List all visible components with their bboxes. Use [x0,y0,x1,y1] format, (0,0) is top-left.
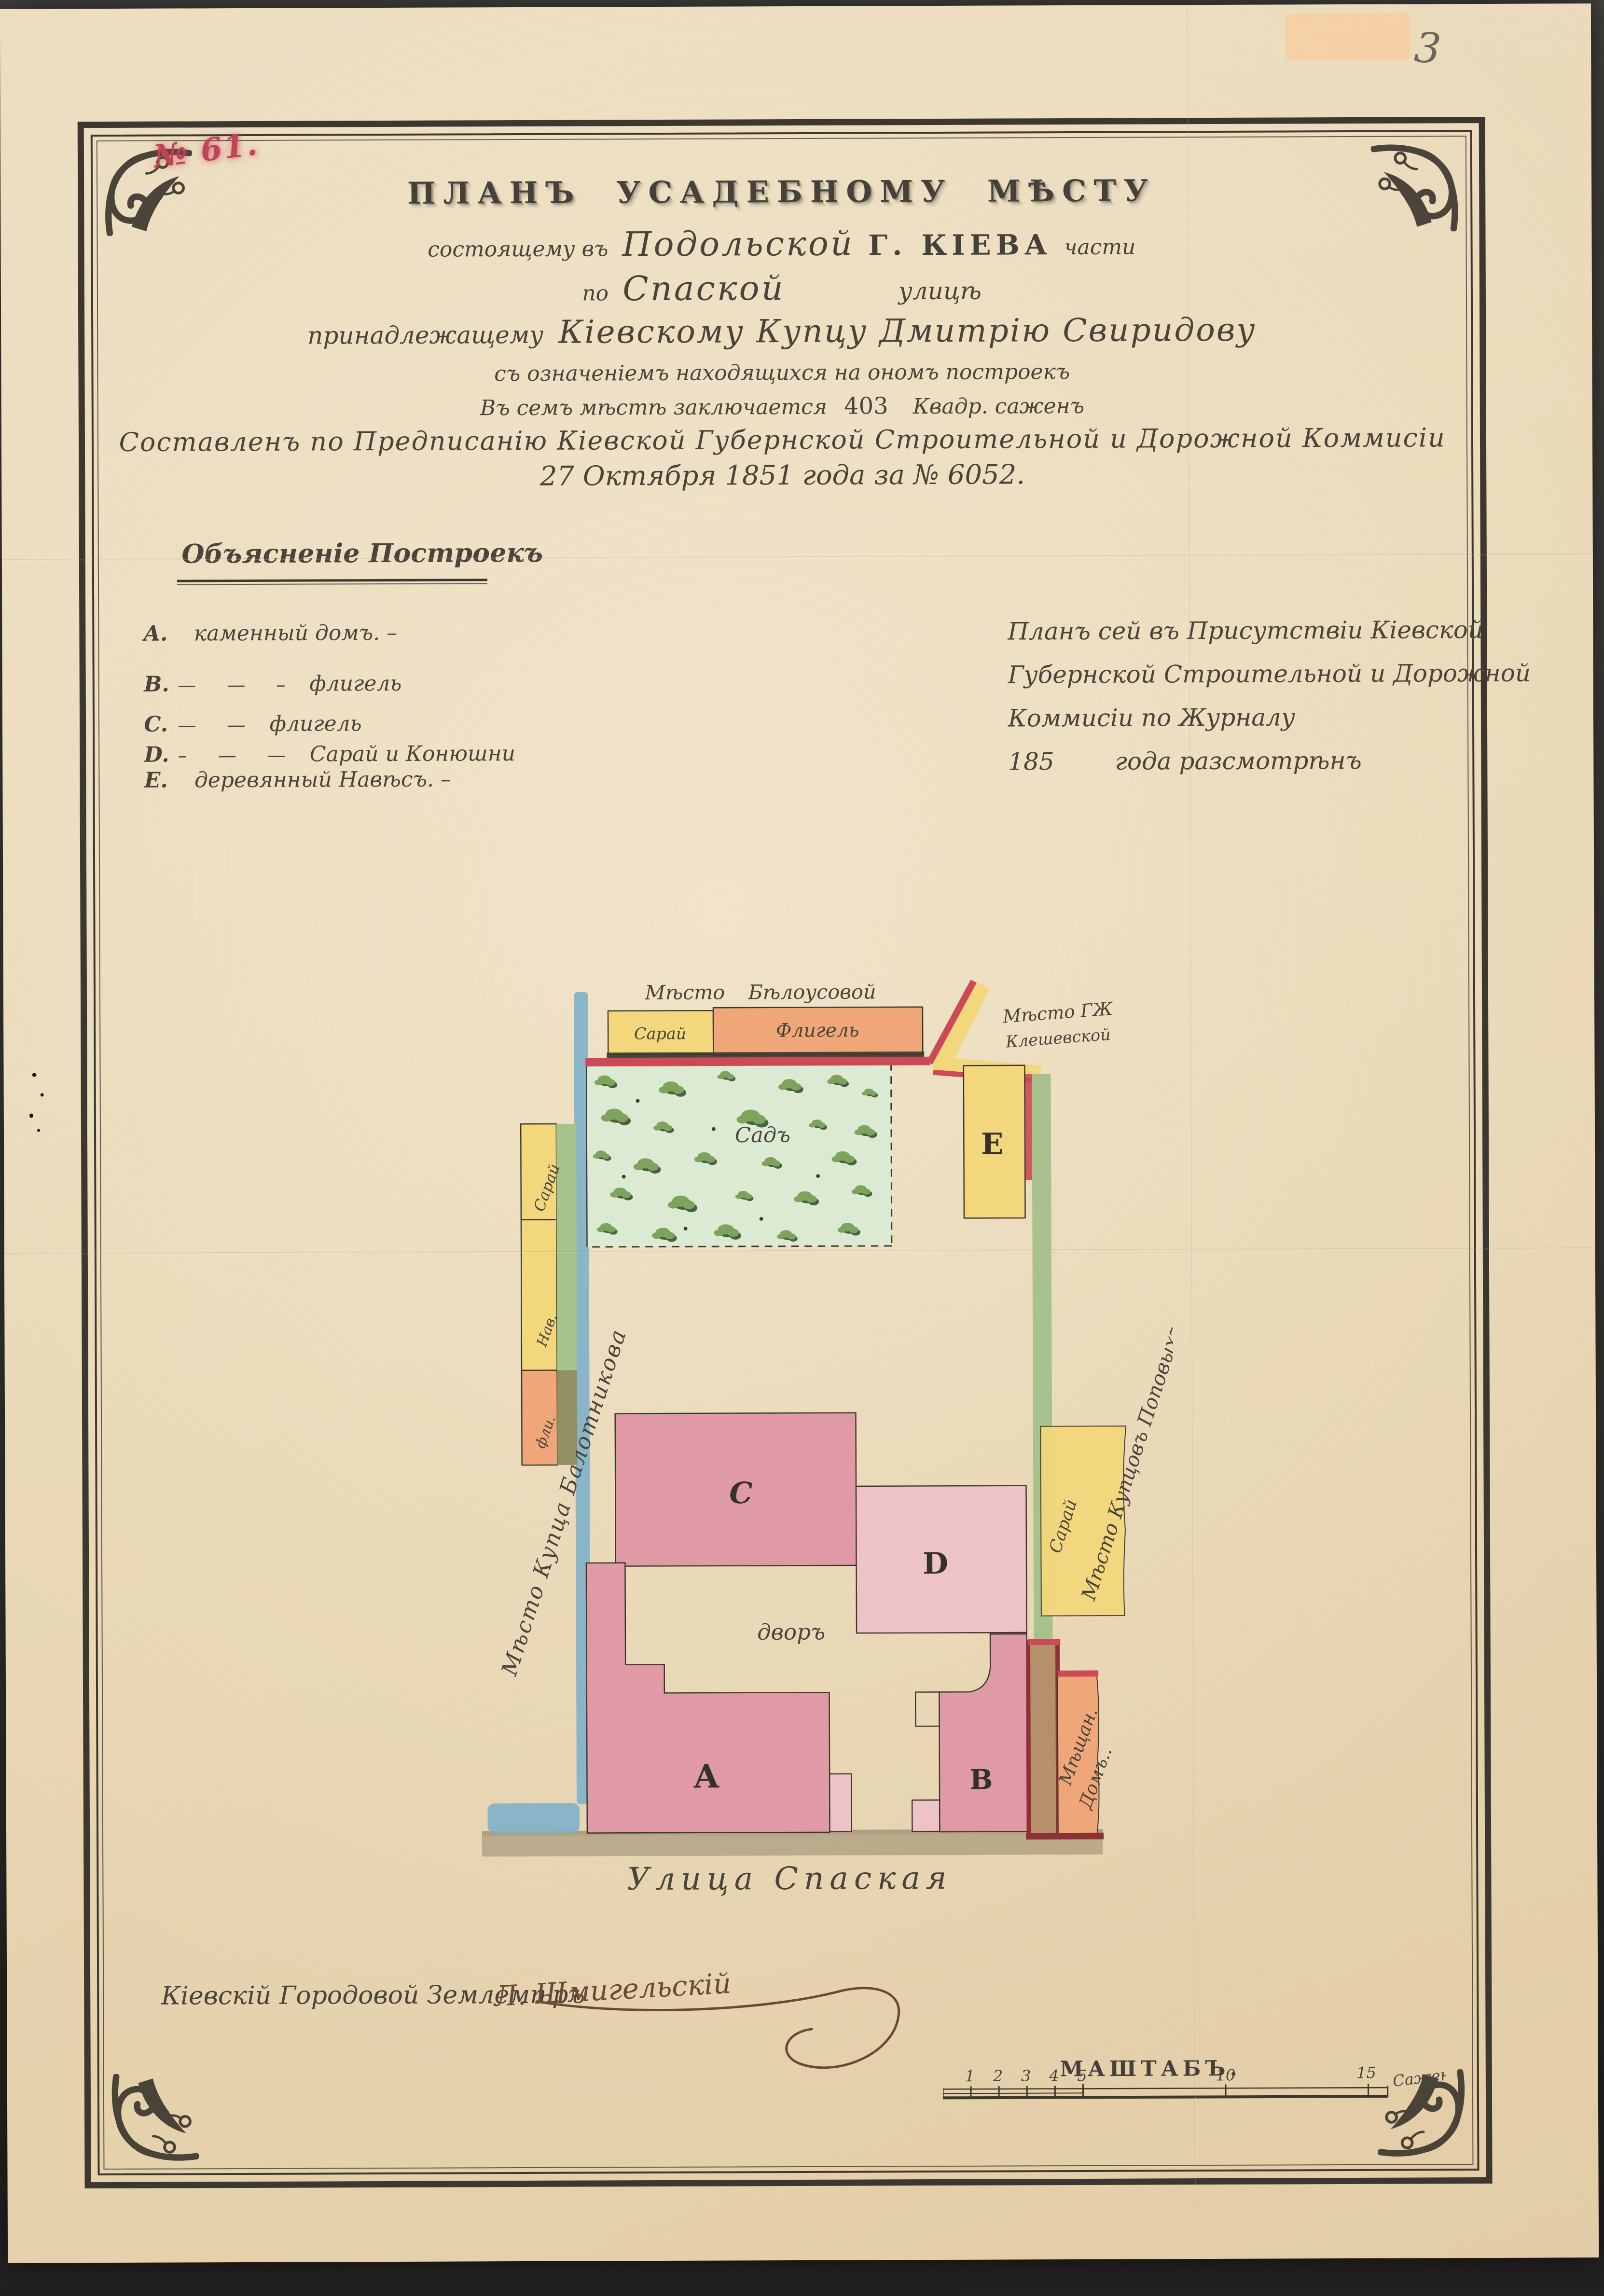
top-neighbor-label: Мѣсто Бѣлоусовой [644,981,876,1005]
legend-item-b: B.— — – флигель [144,671,653,697]
legend-letter: D. [144,743,178,767]
approval-line-1: Планъ сей въ Присутствіи Кіевской [1008,608,1533,653]
title-district: Подольской [622,224,855,264]
title-area-unit: Квадр. саженъ [913,394,1084,419]
scale-tick-1: 1 [965,2067,975,2085]
legend-heading: Объясненіе Построекъ [182,537,543,569]
building-e-letter: E [981,1127,1004,1162]
legend-label: флигель [310,672,402,697]
plan-title: ПЛАНЪ УСАДЕБНОМУ МѢСТУ [78,172,1485,212]
title-buildings-note: съ означеніемъ находящихся на ономъ пост… [494,360,1070,386]
legend-item-e: E.деревянный Навѣсъ. – [144,767,653,793]
building-b-letter: B [969,1764,993,1796]
building-b [939,1633,1027,1832]
legend-label: флигель [270,712,362,737]
legend-dashes: — — – [178,674,298,696]
title-owner-name: Кіевскому Купцу Дмитрію Свиридову [558,311,1257,351]
scale-unit: Саженъ [1392,2064,1446,2090]
document-header: ПЛАНЪ УСАДЕБНОМУ МѢСТУ состоящему въ Под… [78,172,1486,498]
legend-letter: E. [144,768,178,793]
street-name-label: Улица Спаская [627,1861,952,1898]
left-neighbor-hut [521,1220,557,1370]
title-located-in: состоящему въ [428,237,608,262]
title-line-owner: принадлежащему Кіевскому Купцу Дмитрію С… [78,310,1486,352]
legend-dashes: – — — [178,745,298,766]
title-belonging-word: принадлежащему [307,321,543,350]
street-band [482,1832,1103,1857]
pencil-page-number: 3 [1413,24,1443,74]
building-a-step [830,1774,852,1832]
commission-approval-note: Планъ сей въ Присутствіи Кіевской Губерн… [1008,608,1533,784]
road-yellow-elbow [940,985,1040,1075]
approval-line-3: Коммисіи по Журналу [1008,695,1533,740]
ink-speck [29,1114,33,1118]
ink-speck [32,1073,37,1077]
garden-label: Садъ [735,1123,790,1148]
building-d-letter: D [923,1547,948,1581]
bottomright-house-wall [1028,1642,1058,1837]
title-line-area: Въ семъ мѣстѣ заключается 403 Квадр. саж… [79,390,1486,422]
title-commission: Составленъ по Предписанію Кіевской Губер… [119,423,1446,458]
topright-neighbor-label-1: Мѣсто ГЖ [1001,998,1114,1028]
scale-title: МАШТАБЪ. [1060,2056,1242,2081]
corner-flourish-icon [107,2074,199,2166]
legend-label: деревянный Навѣсъ. – [194,767,451,793]
building-c-letter: C [729,1477,753,1511]
legend-item-a: A.каменный домъ. – [144,620,653,647]
legend-letter: C. [144,712,178,737]
topright-neighbor-label-2: Клешевской [1005,1025,1111,1051]
ink-speck [37,1129,40,1132]
title-city: Г. КІЕВА [868,228,1052,262]
title-line-commission: Составленъ по Предписанію Кіевской Губер… [79,422,1486,457]
scale-tick-3: 3 [1021,2067,1031,2085]
plan-drawing: Садъ Сарай Флигель Мѣсто Бѣлоусовой Мѣст… [454,971,1175,1903]
top-wing-label: Флигель [776,1020,859,1042]
legend-item-d: D.– — — Сарай и Конюшни [144,741,653,768]
legend-dashes: — — [178,715,258,736]
building-b-notch [915,1692,939,1727]
area-value: 403 [844,393,888,420]
approval-line-2: Губернской Строительной и Дорожной [1008,651,1533,697]
approval-line-4: 185 года разсмотрѣнъ [1008,738,1533,784]
title-line-street: по Спаской улицѣ [78,266,1486,310]
approval-year-blank: 185 [1008,747,1054,775]
title-line-location: состоящему въ Подольской Г. КІЕВА части [78,221,1486,266]
legend-item-c: C.— — флигель [144,711,653,737]
title-part-word: части [1064,235,1135,260]
paper-sheet: 3 № 61. ПЛАНЪ УСАДЕБНОМУ МѢСТУ состоящем… [0,4,1599,2263]
boundary-red-top [585,1061,930,1062]
signature-flourish [532,1980,914,2086]
tape-patch [1286,13,1410,60]
title-street-name: Спаской [622,268,785,308]
courtyard-label: дворъ [757,1619,825,1645]
title-street-word: улицѣ [899,277,982,305]
top-shed-label: Сарай [634,1024,686,1043]
scale-tick-4: 4 [1049,2067,1059,2085]
title-line-date: 27 Октября 1851 года за № 6052. [79,457,1486,494]
legend-label: каменный домъ. – [194,621,397,646]
building-b-step [912,1800,940,1832]
title-area-pre: Въ семъ мѣстѣ заключается [480,395,827,421]
legend-list: A.каменный домъ. – B.— — – флигель C.— —… [144,620,654,808]
legend-label: Сарай и Конюшни [310,742,515,767]
legend-letter: A. [144,622,178,646]
legend-letter: B. [144,672,178,697]
boundary-blue-bottom-arm [487,1804,580,1834]
ink-speck [41,1093,44,1096]
scale-tick-15: 15 [1356,2063,1376,2082]
approval-reviewed: года разсмотрѣнъ [1115,747,1362,775]
building-a-letter: A [693,1757,719,1796]
bottomright-base [1026,1833,1104,1840]
title-line-buildings-note: съ означеніемъ находящихся на ономъ пост… [79,358,1486,387]
title-on-word: по [582,281,609,306]
scale-tick-2: 2 [993,2067,1003,2085]
title-date-number: 27 Октября 1851 года за № 6052. [540,459,1025,493]
